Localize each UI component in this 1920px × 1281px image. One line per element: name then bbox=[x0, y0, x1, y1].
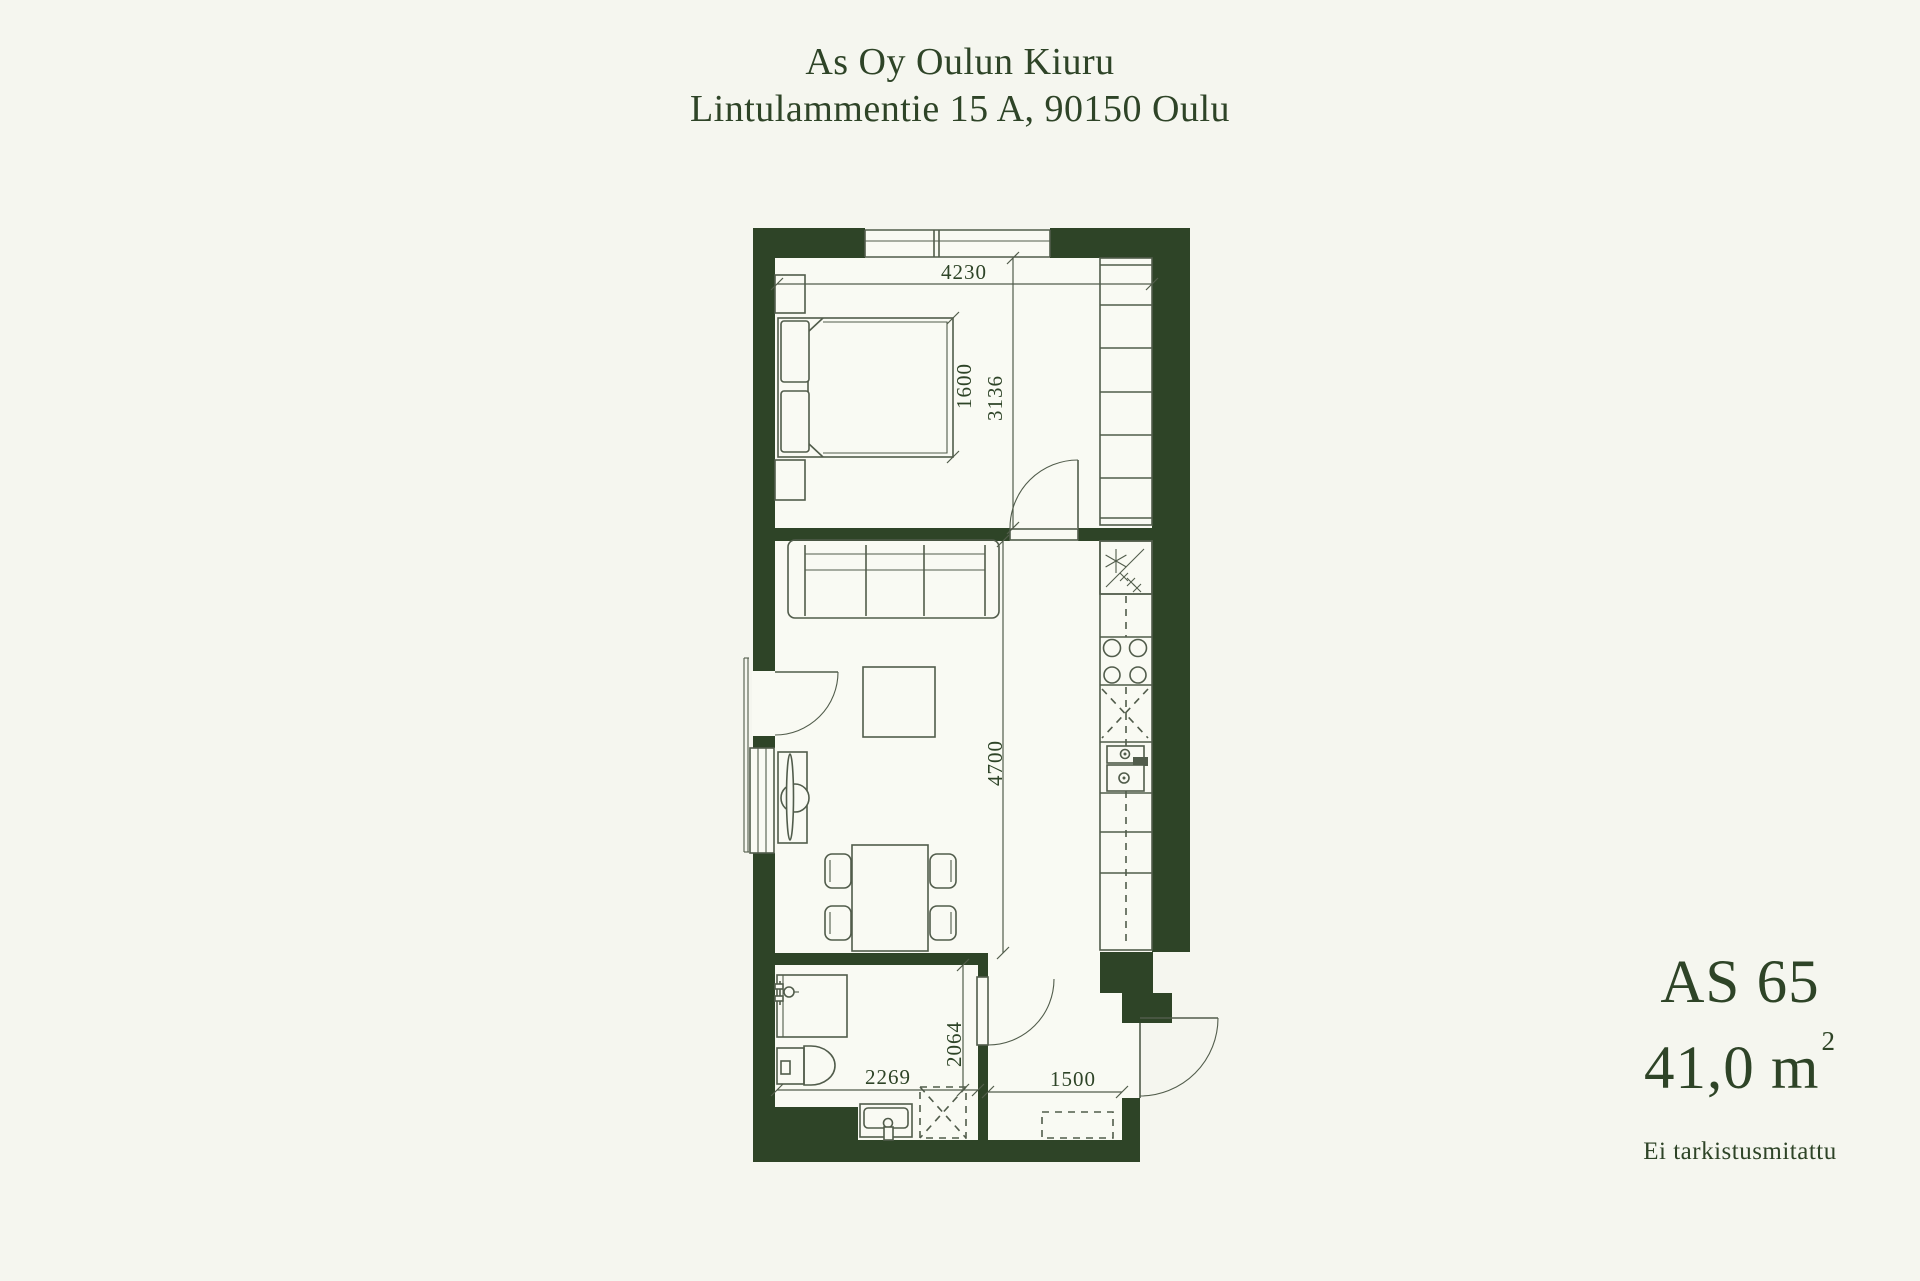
pillow bbox=[781, 391, 809, 452]
dining-chair bbox=[930, 906, 956, 940]
area-value: 41,0 m bbox=[1644, 1035, 1819, 1102]
unit-id: AS 65 bbox=[1560, 948, 1920, 1018]
dining-chair bbox=[930, 854, 956, 888]
unit-info: AS 65 41,0 m2 Ei tarkistusmitattu bbox=[1560, 948, 1920, 1166]
kitchen-sink bbox=[1107, 746, 1148, 791]
svg-text:2064: 2064 bbox=[942, 1021, 966, 1067]
measurement-note: Ei tarkistusmitattu bbox=[1560, 1138, 1920, 1166]
svg-text:3136: 3136 bbox=[983, 375, 1007, 421]
living-room-window bbox=[749, 748, 775, 853]
svg-text:1600: 1600 bbox=[952, 363, 976, 409]
dining-chair bbox=[825, 906, 851, 940]
area-superscript: 2 bbox=[1821, 1026, 1836, 1056]
balcony-railing bbox=[744, 658, 749, 852]
bedroom-window bbox=[865, 229, 1050, 257]
floorplan-page: As Oy Oulun Kiuru Lintulammentie 15 A, 9… bbox=[0, 0, 1920, 1281]
tv-stand bbox=[781, 784, 809, 812]
unit-area: 41,0 m2 bbox=[1560, 1026, 1920, 1104]
tv-screen bbox=[787, 754, 794, 840]
dining-chair bbox=[825, 854, 851, 888]
svg-text:4230: 4230 bbox=[941, 260, 987, 284]
dining-table bbox=[852, 845, 928, 951]
pillow bbox=[781, 321, 809, 382]
bathroom-sink bbox=[860, 1104, 912, 1140]
svg-text:2269: 2269 bbox=[865, 1065, 911, 1089]
svg-text:1500: 1500 bbox=[1050, 1067, 1096, 1091]
svg-text:4700: 4700 bbox=[983, 740, 1007, 786]
